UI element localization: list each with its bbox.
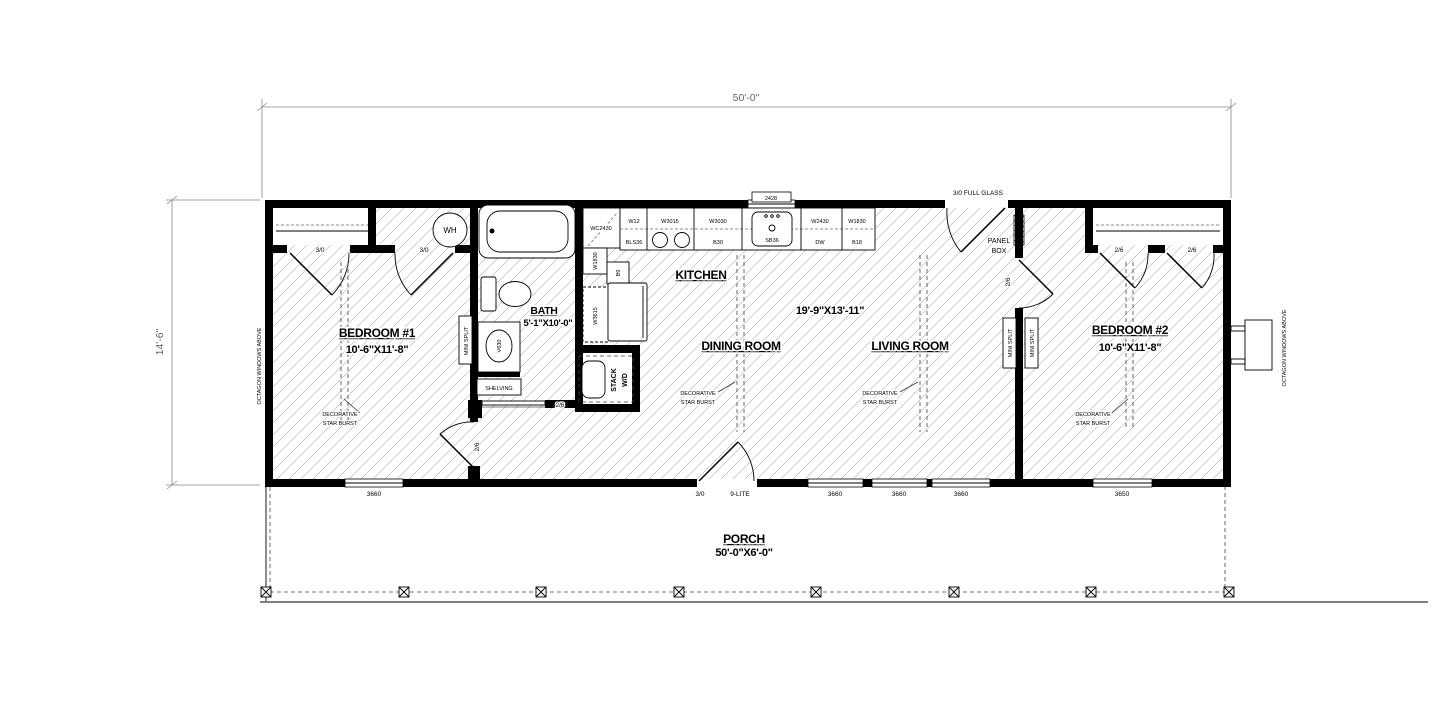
bedroom2-label: BEDROOM #2 [1092,323,1169,337]
living-window-1: 3660 [808,479,863,498]
floor-plan-sheet: 50'-0" 14'-6" PORCH 50'-0"X6'-0" [0,0,1445,701]
svg-text:DECORATIVE: DECORATIVE [322,412,358,418]
cabinet-w3030: W3030 [709,219,726,225]
bedroom2-closet-floor [1093,208,1223,245]
dishwasher-label: DW [815,240,825,246]
octagon-windows-note-right: OCTAGON WINDOWS ABOVE [1282,309,1288,386]
octagon-window-bay [1231,320,1272,370]
octagon-windows-note-left: OCTAGON WINDOWS ABOVE [257,327,263,404]
refrigerator [608,283,647,341]
bedroom1-closet-door-size: 3/0 [315,247,324,254]
bedroom1-window-tag: 3660 [367,491,382,498]
bedroom1-window: 3660 [345,479,403,498]
top-dimension: 50'-0" [257,92,1236,198]
cabinet-b9: B9 [616,270,622,277]
bedroom2-closet-right-size: 2/6 [1187,247,1196,254]
porch-size: 50'-0"X6'-0" [715,547,772,559]
stack-wd-label-2: W/D [622,373,629,387]
cabinet-bls36: BLS36 [626,240,643,246]
kitchen-window: 2428 [748,192,795,208]
bedroom2-closet-left-size: 2/6 [1114,247,1123,254]
cabinet-w12: W12 [628,219,639,225]
living-window-2: 3660 [872,479,927,498]
bath-pocket-door-size: 2/6 [555,402,564,409]
bedroom2-size: 10'-6"X11'-8" [1099,342,1162,354]
bedroom2-window: 3650 [1093,479,1152,498]
svg-text:STAR BURST: STAR BURST [863,400,898,406]
cabinet-sb36: SB36 [765,238,778,244]
bathtub [479,205,575,258]
mini-split-bedroom2: MINI SPLIT [1030,328,1036,357]
porch-label: PORCH [723,532,765,546]
stack-wd-label-1: STACK [611,368,618,392]
cabinet-w2430: W2430 [811,219,828,225]
mini-split-bedroom1: MINI SPLIT [464,326,470,355]
dining-room-label: DINING ROOM [701,339,781,353]
svg-text:STAR BURST: STAR BURST [681,400,716,406]
overall-width-dimension: 50'-0" [733,92,760,104]
cabinet-b18: B18 [852,240,862,246]
bedroom1-closet-floor [273,208,368,245]
panel-box-label-1: PANEL [988,238,1011,245]
bedroom2-entry-door-size: 2/6 [1005,277,1012,286]
svg-text:DECORATIVE: DECORATIVE [862,391,898,397]
kitchen-window-tag: 2428 [765,196,777,202]
living-window-2-tag: 3660 [892,491,907,498]
svg-text:STAR BURST: STAR BURST [323,421,358,427]
front-door-type: 9-LITE [730,491,750,498]
water-heater-label: WH [443,226,457,235]
bedroom1-label: BEDROOM #1 [339,326,416,340]
cabinet-w3015: W3015 [661,219,678,225]
shelving-label: SHELVING [485,386,512,392]
mini-split-living: MINI SPLIT [1008,328,1014,357]
cabinet-left-wall: W1830 [593,252,599,269]
cabinet-w3615: W3615 [593,307,599,324]
cabinet-w1830: W1830 [848,219,865,225]
floor-plan-drawing: 50'-0" 14'-6" PORCH 50'-0"X6'-0" [0,0,1445,701]
bedroom1-entry-door-size: 2/6 [474,442,481,451]
rear-door-size: 3/0 FULL GLASS [953,190,1004,197]
water-heater: WH [433,213,467,247]
vanity-sink: V630 [478,322,520,372]
living-window-3-tag: 3660 [954,491,969,498]
porch: PORCH 50'-0"X6'-0" [260,487,1428,602]
left-dimension: 14'-6" [154,196,260,489]
kitchen-size: 19'-9"X13'-11" [796,305,864,317]
wh-closet-door-size: 3/0 [419,247,428,254]
bath-label: BATH [530,305,557,317]
overall-depth-dimension: 14'-6" [154,328,166,355]
panel-box-label-2: BOX [992,248,1007,255]
front-door-size: 3/0 [695,491,704,498]
bedroom2-window-tag: 3650 [1115,491,1130,498]
bedroom1-size: 10'-6"X11'-8" [346,344,409,356]
kitchen-sink: SB36 [752,212,792,246]
svg-text:DECORATIVE: DECORATIVE [680,391,716,397]
bath-size: 5'-1"X10'-0" [523,318,572,329]
kitchen-label: KITCHEN [675,268,726,282]
living-window-3: 3660 [932,479,990,498]
living-window-1-tag: 3660 [828,491,843,498]
vanity-label: V630 [497,340,503,353]
cabinet-wc2430: WC2430 [590,226,611,232]
svg-text:DECORATIVE: DECORATIVE [1075,412,1111,418]
living-room-label: LIVING ROOM [871,339,949,353]
shelving: SHELVING [477,379,521,395]
svg-text:STAR BURST: STAR BURST [1076,421,1111,427]
cabinet-b30: B30 [713,240,723,246]
